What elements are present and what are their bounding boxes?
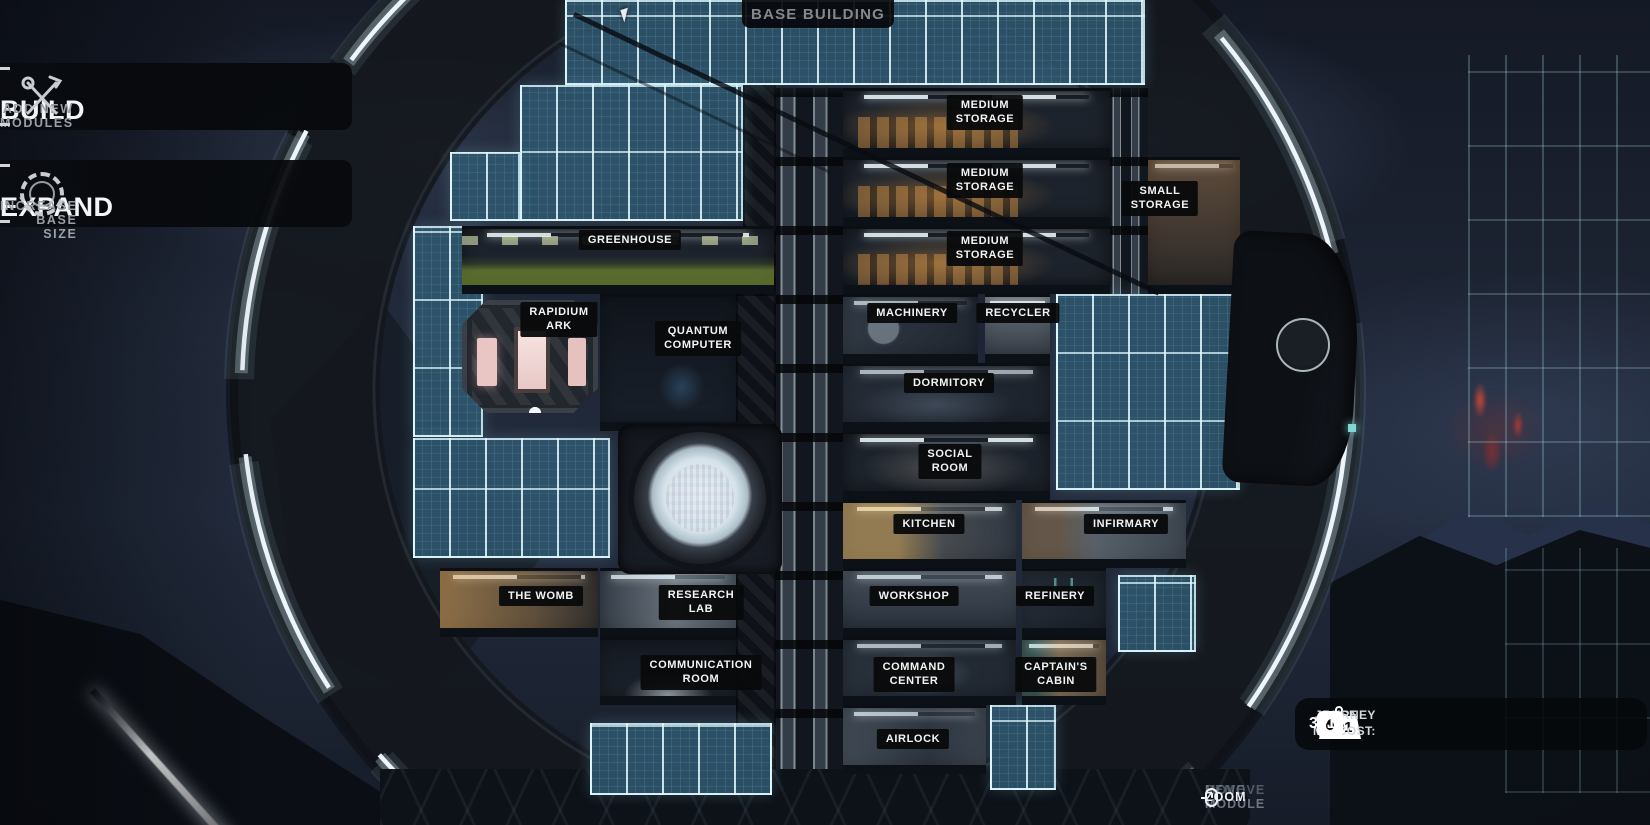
module-label-recycler: RECYCLER [976, 303, 1059, 323]
expand-button[interactable]: EXPAND INCREASE BASE SIZE [0, 160, 352, 227]
module-label-research-lab: RESEARCH LAB [659, 585, 744, 620]
ark-window [477, 338, 497, 385]
solar-panel-block[interactable] [1118, 575, 1196, 652]
ark-window [514, 327, 551, 393]
module-label-social-room: SOCIAL ROOM [918, 444, 981, 479]
module-label-command-center: COMMAND CENTER [874, 657, 955, 692]
solar-panel-block[interactable] [1056, 294, 1240, 490]
solar-panel-block[interactable] [450, 152, 520, 221]
bottom-structure-band [380, 769, 1250, 825]
reactor-porthole [634, 432, 766, 564]
module-label-small-storage: SMALL STORAGE [1122, 181, 1198, 216]
solar-panel-block[interactable] [990, 705, 1056, 790]
room-interior [600, 297, 736, 422]
gear-icon [0, 160, 84, 227]
base-building-screen: MEDIUM STORAGE MEDIUM STORAGE MEDIUM STO… [0, 0, 1650, 825]
elevator-shaft [776, 88, 843, 769]
module-label-quantum-computer: QUANTUM COMPUTER [655, 321, 741, 356]
module-label-airlock: AIRLOCK [877, 729, 949, 749]
build-button[interactable]: BUILD ADD NEW MODULES [0, 63, 352, 130]
hub-porthole [1276, 318, 1330, 372]
solar-panel-block[interactable] [520, 85, 743, 221]
module-label-dormitory: DORMITORY [904, 373, 994, 393]
module-quantum-computer[interactable] [600, 294, 736, 431]
solar-panel-block[interactable] [590, 723, 772, 795]
zoom-label: ZOOM [1205, 790, 1247, 804]
page-title: BASE BUILDING [742, 0, 894, 28]
module-small-storage[interactable] [1148, 157, 1240, 294]
module-label-rapidium-ark: RAPIDIUM ARK [520, 302, 597, 337]
module-label-machinery: MACHINERY [867, 303, 957, 323]
hub-indicator-light [1348, 424, 1356, 432]
module-label-medium-storage-1: MEDIUM STORAGE [947, 95, 1023, 130]
module-label-medium-storage-3: MEDIUM STORAGE [947, 231, 1023, 266]
ark-window [568, 338, 586, 385]
module-label-greenhouse: GREENHOUSE [579, 230, 681, 250]
hammer-wrench-icon [0, 63, 84, 130]
module-label-communication-room: COMMUNICATION ROOM [641, 655, 762, 690]
module-label-refinery: REFINERY [1016, 586, 1094, 606]
module-label-medium-storage-2: MEDIUM STORAGE [947, 163, 1023, 198]
module-label-the-womb: THE WOMB [499, 586, 583, 606]
module-label-kitchen: KITCHEN [893, 514, 964, 534]
module-label-captains-cabin: CAPTAIN'S CABIN [1015, 657, 1096, 692]
base-stats-bar: BASE MASS : 391 > JOURNEY COST: 391 [1295, 698, 1647, 750]
module-label-workshop: WORKSHOP [870, 586, 959, 606]
module-label-infirmary: INFIRMARY [1084, 514, 1168, 534]
journey-cost-value: 391 [1309, 715, 1336, 733]
solar-panel-block[interactable] [413, 438, 610, 558]
room-interior [1148, 160, 1240, 285]
